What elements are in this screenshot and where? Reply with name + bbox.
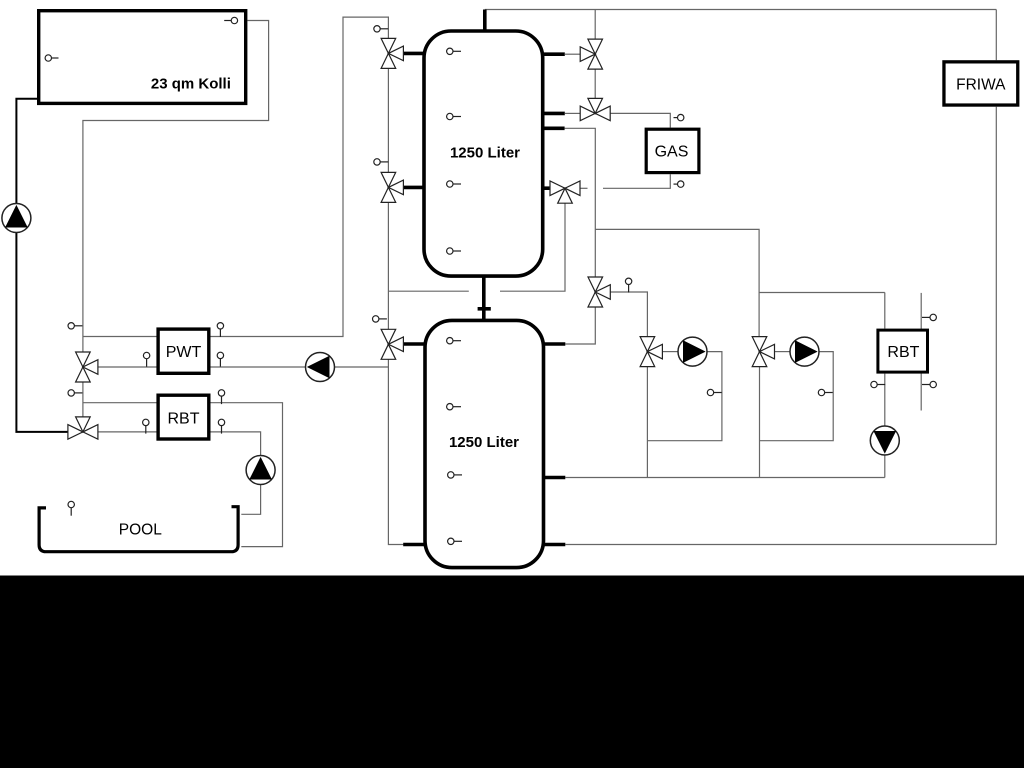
svg-text:23 qm Kolli: 23 qm Kolli [151, 76, 231, 93]
svg-text:RBT: RBT [168, 411, 200, 428]
svg-text:GAS: GAS [655, 143, 689, 160]
svg-text:POOL: POOL [119, 522, 162, 539]
svg-text:FRIWA: FRIWA [956, 76, 1006, 93]
svg-text:RBT: RBT [887, 344, 919, 361]
svg-text:1250 Liter: 1250 Liter [449, 434, 519, 451]
svg-text:PWT: PWT [166, 344, 202, 361]
svg-text:1250 Liter: 1250 Liter [450, 144, 520, 161]
